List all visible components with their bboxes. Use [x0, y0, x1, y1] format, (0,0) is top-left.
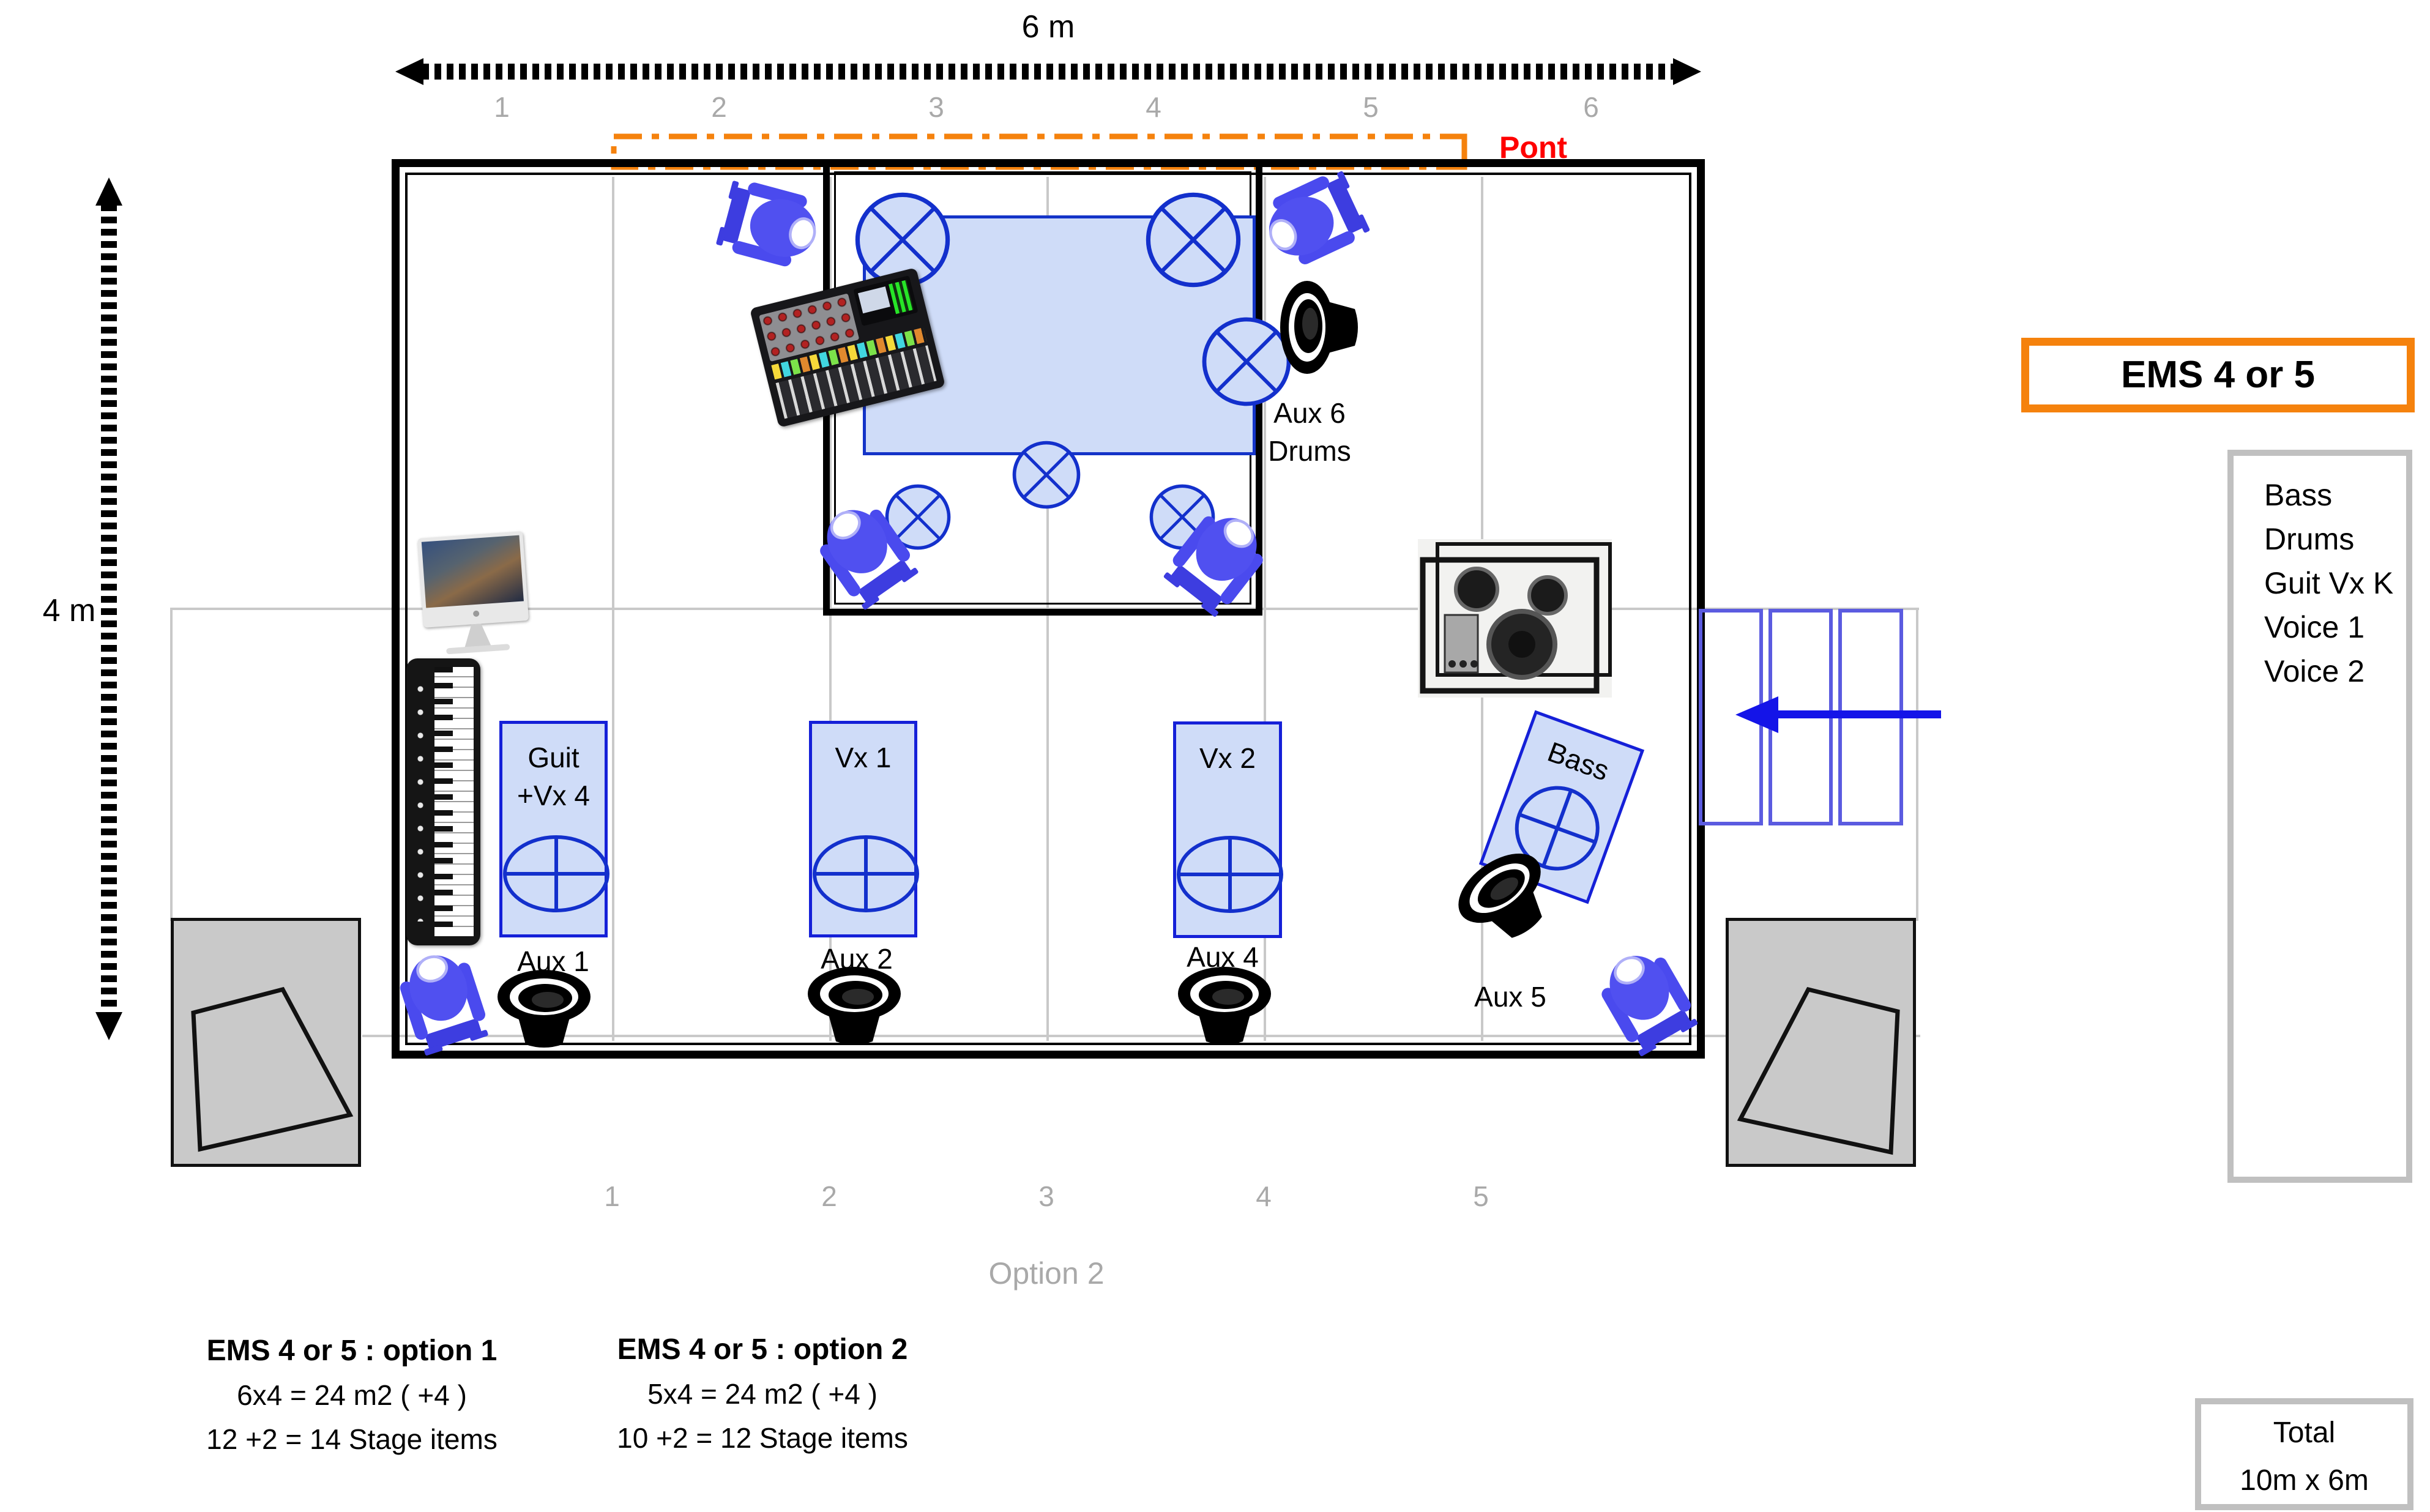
width-dimension-label: 6 m: [975, 9, 1122, 45]
total-label: Total: [2201, 1409, 2407, 1457]
option-2-title: EMS 4 or 5 : option 2: [551, 1328, 974, 1372]
top-scale-2: 2: [695, 91, 744, 124]
imac-base: [446, 644, 510, 654]
arrowhead-left-icon: [395, 58, 423, 85]
drum-symbol-circle-2: [1144, 191, 1242, 289]
monitor-label: Vx 1: [812, 739, 914, 776]
ems-title: EMS 4 or 5: [2121, 354, 2315, 396]
total-box: Total 10m x 6m: [2195, 1398, 2413, 1510]
stage-plan-canvas: { "dimensions": { "width": "6 m", "heigh…: [0, 0, 2430, 1512]
monitor-label: Guit: [502, 739, 605, 776]
drum-symbol-circle-4: [1012, 440, 1081, 510]
height-dimension-arrow: [101, 204, 117, 1013]
input-list-item: Bass: [2234, 473, 2406, 517]
wedge-speaker-icon: [1176, 966, 1273, 1046]
width-dimension-arrow: [422, 64, 1674, 80]
imac-shell: [417, 531, 529, 628]
imac-screen: [422, 535, 524, 608]
mixer-screen: [853, 275, 918, 326]
wedge-speaker-icon: [805, 966, 903, 1046]
bottom-scale-5: 5: [1456, 1180, 1505, 1213]
pa-speaker-outline-icon: [174, 921, 358, 1164]
bottom-scale-2: 2: [805, 1180, 854, 1213]
input-list-item: Voice 2: [2234, 649, 2406, 693]
bass-amp-cabinet: [1418, 539, 1612, 698]
pa-speaker-zone-right: [1726, 918, 1916, 1167]
top-scale-6: 6: [1567, 91, 1616, 124]
option-1-title: EMS 4 or 5 : option 1: [141, 1329, 563, 1373]
mixer-meter-leds: [889, 280, 914, 314]
input-list-item: Guit Vx K: [2234, 561, 2406, 605]
mic-symbol-icon: [812, 834, 920, 914]
mic-symbol-icon: [502, 834, 610, 914]
monitor-wedge-vx2: Vx 2: [1173, 721, 1282, 938]
aux-label: Aux 1: [486, 945, 621, 978]
pa-speaker-zone-left: [171, 918, 361, 1167]
option-1-items: 12 +2 = 14 Stage items: [141, 1417, 563, 1461]
arrowhead-up-icon: [95, 177, 122, 206]
option-1-area: 6x4 = 24 m2 ( +4 ): [141, 1373, 563, 1417]
imac-stand: [463, 623, 491, 648]
monitor-label: Vx 2: [1176, 739, 1279, 777]
monitor-wedge-guit: Guit +Vx 4: [499, 721, 608, 937]
input-list-item: Drums: [2234, 517, 2406, 561]
aux-label: Aux 5: [1443, 980, 1578, 1013]
bottom-scale-3: 3: [1022, 1180, 1071, 1213]
option-caption: Option 2: [949, 1256, 1144, 1291]
bottom-scale-4: 4: [1239, 1180, 1288, 1213]
mic-symbol-icon: [1176, 835, 1284, 914]
mixer-display: [858, 286, 890, 313]
ems-title-box: EMS 4 or 5: [2021, 338, 2415, 412]
stage-gridline-1m: [612, 177, 614, 1041]
aux-label: Aux 2: [789, 942, 924, 975]
entry-arrow-head-icon: [1735, 696, 1778, 733]
input-list-box: Bass Drums Guit Vx K Voice 1 Voice 2: [2227, 450, 2412, 1183]
bass-amp-drawing: [1418, 539, 1612, 698]
imac-computer: [417, 531, 531, 658]
pa-speaker-outline-icon: [1729, 921, 1913, 1164]
piano-control-knobs: [412, 683, 428, 922]
top-scale-1: 1: [477, 91, 526, 124]
monitor-wedge-vx1: Vx 1: [809, 721, 917, 937]
monitor-label-line2: +Vx 4: [502, 776, 605, 814]
stage-piano: [406, 658, 480, 945]
aux-label: Aux 6: [1242, 397, 1377, 430]
arrowhead-down-icon: [95, 1012, 122, 1040]
drums-label: Drums: [1242, 434, 1377, 467]
total-value: 10m x 6m: [2201, 1457, 2407, 1505]
top-scale-4: 4: [1129, 91, 1178, 124]
entry-arrow-line: [1775, 710, 1941, 718]
input-list-item: Voice 1: [2234, 605, 2406, 649]
piano-black-keys: [434, 667, 453, 936]
option-1-summary: EMS 4 or 5 : option 1 6x4 = 24 m2 ( +4 )…: [141, 1329, 563, 1461]
guide-left-wing-vertical: [170, 608, 173, 921]
option-2-items: 10 +2 = 12 Stage items: [551, 1416, 974, 1460]
option-2-area: 5x4 = 24 m2 ( +4 ): [551, 1372, 974, 1416]
aux-label: Aux 4: [1155, 940, 1290, 974]
top-scale-3: 3: [912, 91, 961, 124]
bottom-scale-1: 1: [587, 1180, 636, 1213]
top-scale-5: 5: [1346, 91, 1395, 124]
guide-right-wing-vertical: [1916, 608, 1918, 921]
arrowhead-right-icon: [1673, 58, 1701, 85]
imac-logo-icon: [473, 611, 480, 617]
option-2-summary: EMS 4 or 5 : option 2 5x4 = 24 m2 ( +4 )…: [551, 1328, 974, 1460]
wedge-speaker-icon: [495, 969, 593, 1049]
side-speaker-icon: [1270, 278, 1368, 376]
